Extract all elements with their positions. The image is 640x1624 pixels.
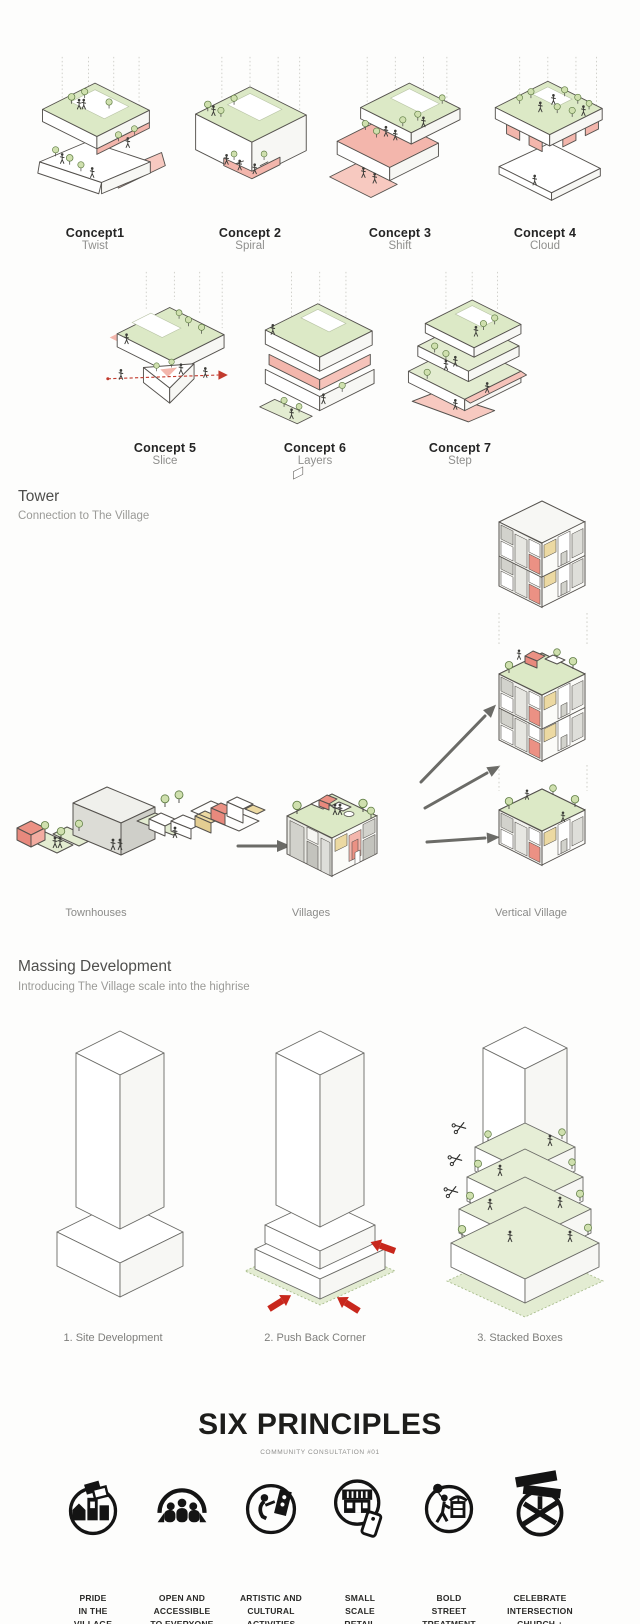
concept-name: Concept 3 (325, 226, 475, 240)
concept-name: Concept 4 (470, 226, 620, 240)
principles-title: SIX PRINCIPLES (0, 1408, 640, 1442)
village-pride-icon (63, 1477, 123, 1543)
concept-subtitle: Cloud (470, 240, 620, 252)
stage-label-vertical-village: Vertical Village (481, 907, 581, 919)
site-development-illustration (25, 1015, 205, 1325)
concept-slice-illustration (90, 270, 240, 420)
concept-figure-shift: Concept 3 Shift (325, 55, 475, 252)
principle-label-artistic: ARTISTIC AND CULTURAL ACTIVITIES (226, 1592, 316, 1624)
concept-subtitle: Step (385, 455, 535, 467)
concept-name: Concept 2 (175, 226, 325, 240)
principle-label-retail: SMALL SCALE RETAIL (315, 1592, 405, 1624)
concept-subtitle: Twist (20, 240, 170, 252)
principle-label-celebrate: CELEBRATE INTERSECTION CHURCH + WELLESLE… (495, 1592, 585, 1624)
bold-street-icon (419, 1477, 479, 1543)
principle-label-pride: PRIDE IN THE VILLAGE (48, 1592, 138, 1624)
concept-figure-slice: Concept 5 Slice (90, 270, 240, 467)
principle-label-open: OPEN AND ACCESSIBLE TO EVERYONE (137, 1592, 227, 1624)
concept-name: Concept 7 (385, 441, 535, 455)
concept-figure-step: Concept 7 Step (385, 270, 535, 467)
open-accessible-icon (152, 1477, 212, 1543)
vertical-village-illustration (480, 495, 605, 865)
concept-figure-cloud: Concept 4 Cloud (470, 55, 620, 252)
principles-subtitle: COMMUNITY CONSULTATION #01 (0, 1449, 640, 1456)
concept-name: Concept1 (20, 226, 170, 240)
small-retail-icon (330, 1477, 390, 1547)
tower-section-title: Tower (18, 488, 59, 506)
push-back-corner-illustration (225, 1015, 405, 1325)
concept-figure-twist: Concept1 Twist (20, 55, 170, 252)
townhouses-illustration (15, 735, 265, 865)
step-label-stacked-boxes: 3. Stacked Boxes (450, 1332, 590, 1344)
massing-section-subtitle: Introducing The Village scale into the h… (18, 981, 250, 993)
concept-subtitle: Spiral (175, 240, 325, 252)
concept-twist-illustration (20, 55, 170, 205)
artistic-cultural-icon (241, 1477, 301, 1543)
stage-label-townhouses: Townhouses (46, 907, 146, 919)
villages-illustration (275, 772, 390, 887)
concept-shift-illustration (325, 55, 475, 205)
concept-subtitle: Layers (240, 455, 390, 467)
concept-figure-spiral: Concept 2 Spiral (175, 55, 325, 252)
concept-subtitle: Shift (325, 240, 475, 252)
concept-subtitle: Slice (90, 455, 240, 467)
concept-cloud-illustration (470, 55, 620, 205)
concept-name: Concept 6 (240, 441, 390, 455)
celebrate-intersection-icon (510, 1470, 570, 1543)
concept-board-page: Concept1 Twist Concept 2 Spiral (0, 0, 640, 1624)
concept-layers-illustration (240, 270, 390, 420)
concept-name: Concept 5 (90, 441, 240, 455)
step-label-push-back-corner: 2. Push Back Corner (245, 1332, 385, 1344)
massing-section-title: Massing Development (18, 958, 171, 976)
principle-label-street: BOLD STREET TREATMENT (404, 1592, 494, 1624)
concept-spiral-illustration (175, 55, 325, 205)
concept-step-illustration (385, 270, 535, 420)
step-label-site-development: 1. Site Development (43, 1332, 183, 1344)
tower-section-subtitle: Connection to The Village (18, 510, 149, 522)
stage-label-villages: Villages (261, 907, 361, 919)
stacked-boxes-illustration (430, 1015, 610, 1325)
concept-figure-layers: Concept 6 Layers (240, 270, 390, 467)
